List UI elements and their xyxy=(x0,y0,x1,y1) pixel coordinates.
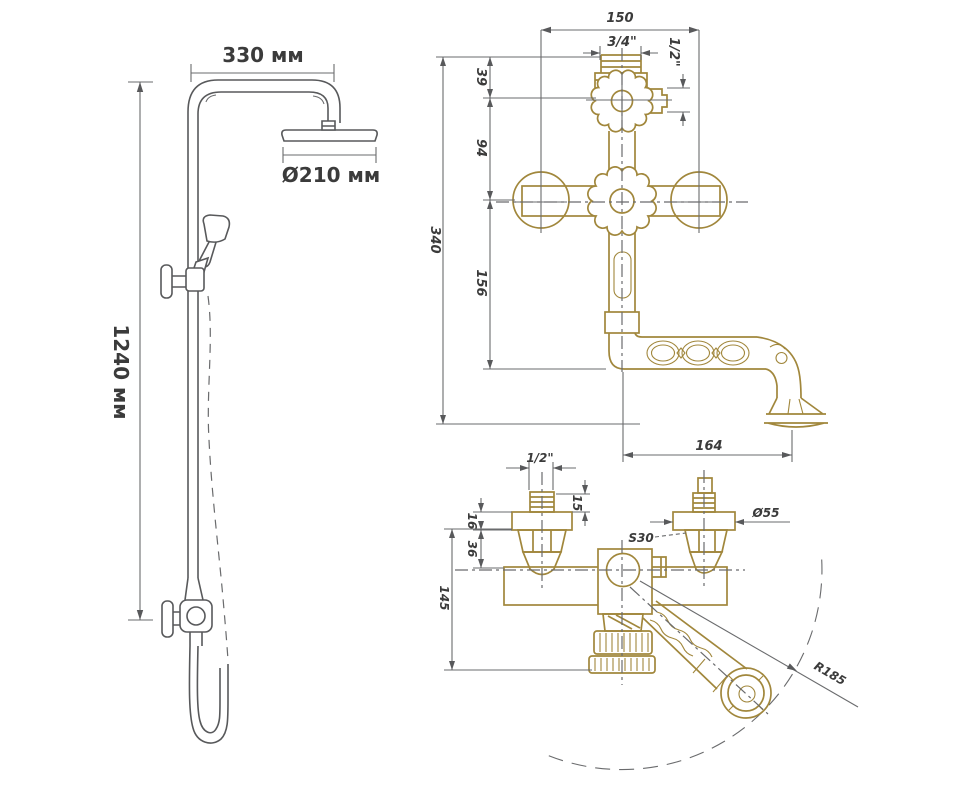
right-hex-nut xyxy=(685,530,727,552)
slider-clamp xyxy=(186,268,204,291)
dim-39-label: 39 xyxy=(473,68,488,86)
faucet-front-view-drawing: 150 3/4" 1/2" 39 94 156 340 xyxy=(427,11,828,462)
diverter-valve-body xyxy=(180,600,212,632)
dim-overall-depth: 145 xyxy=(437,529,592,670)
dim-94-label: 94 xyxy=(473,139,488,157)
dim-spout-reach: 164 xyxy=(623,372,792,462)
shower-hose xyxy=(189,646,228,743)
flange-diameter-label: Ø55 xyxy=(752,506,780,520)
knurled-ring-1 xyxy=(594,631,652,654)
dim-156-label: 156 xyxy=(473,269,488,296)
front-view-body xyxy=(513,55,828,427)
dim-15: 15 xyxy=(556,480,590,526)
shower-column-drawing: 1240 мм 330 мм Ø210 мм xyxy=(109,43,380,743)
head-diameter-label: Ø210 мм xyxy=(282,163,380,187)
valve-knob xyxy=(162,601,173,637)
dim-shower-outlet-thread: 1/2" xyxy=(666,37,690,126)
dim-swivel-radius: R185 xyxy=(640,581,858,707)
dim-36-label: 36 xyxy=(465,541,479,558)
dim-top-thread: 3/4" xyxy=(583,35,658,60)
dim-arm-width: 330 мм xyxy=(191,43,334,82)
dim-column-height: 1240 мм xyxy=(109,82,153,620)
rain-shower-head xyxy=(282,130,377,141)
slider-knob xyxy=(161,265,172,298)
dim-16-36: 16 36 xyxy=(465,498,512,568)
hand-shower-head xyxy=(203,215,229,242)
spout-bell xyxy=(764,398,828,427)
ball-joint-housing xyxy=(598,549,652,614)
technical-drawing-page: 1240 мм 330 мм Ø210 мм xyxy=(0,0,960,800)
overall-height-label: 340 xyxy=(427,226,442,253)
inlet-spacing-label: 150 xyxy=(606,11,633,26)
diverter-neck xyxy=(603,614,643,631)
arm-width-label: 330 мм xyxy=(222,43,303,67)
top-thread-label: 3/4" xyxy=(607,35,637,50)
dim-15-label: 15 xyxy=(570,495,584,512)
column-height-label: 1240 мм xyxy=(109,324,133,419)
head-connector xyxy=(322,121,335,130)
inlet-thread-label: 1/2" xyxy=(526,451,553,465)
dim-inlet-spacing: 150 xyxy=(541,11,699,33)
faucet-side-view-drawing: 1/2" 15 16 36 145 Ø55 xyxy=(437,451,858,770)
overall-depth-label: 145 xyxy=(437,585,451,610)
spout-front xyxy=(609,333,766,369)
dim-overall-height: 340 xyxy=(427,57,446,424)
dim-inlet-thread: 1/2" xyxy=(506,451,576,490)
side-view-body xyxy=(504,478,771,718)
dim-flange-diameter: Ø55 xyxy=(650,506,790,525)
spout-axis-centerline xyxy=(630,587,768,714)
callout-hex-size: S30 xyxy=(628,531,686,545)
hex-size-label: S30 xyxy=(628,531,653,545)
shower-set-technical-drawing: 1240 мм 330 мм Ø210 мм xyxy=(0,0,960,800)
spout-reach-label: 164 xyxy=(695,439,722,454)
shower-outlet-thread-label: 1/2" xyxy=(666,37,681,67)
spout-neck xyxy=(757,337,801,398)
dim-16-label: 16 xyxy=(465,513,479,530)
dim-head-diameter: Ø210 мм xyxy=(282,147,380,187)
